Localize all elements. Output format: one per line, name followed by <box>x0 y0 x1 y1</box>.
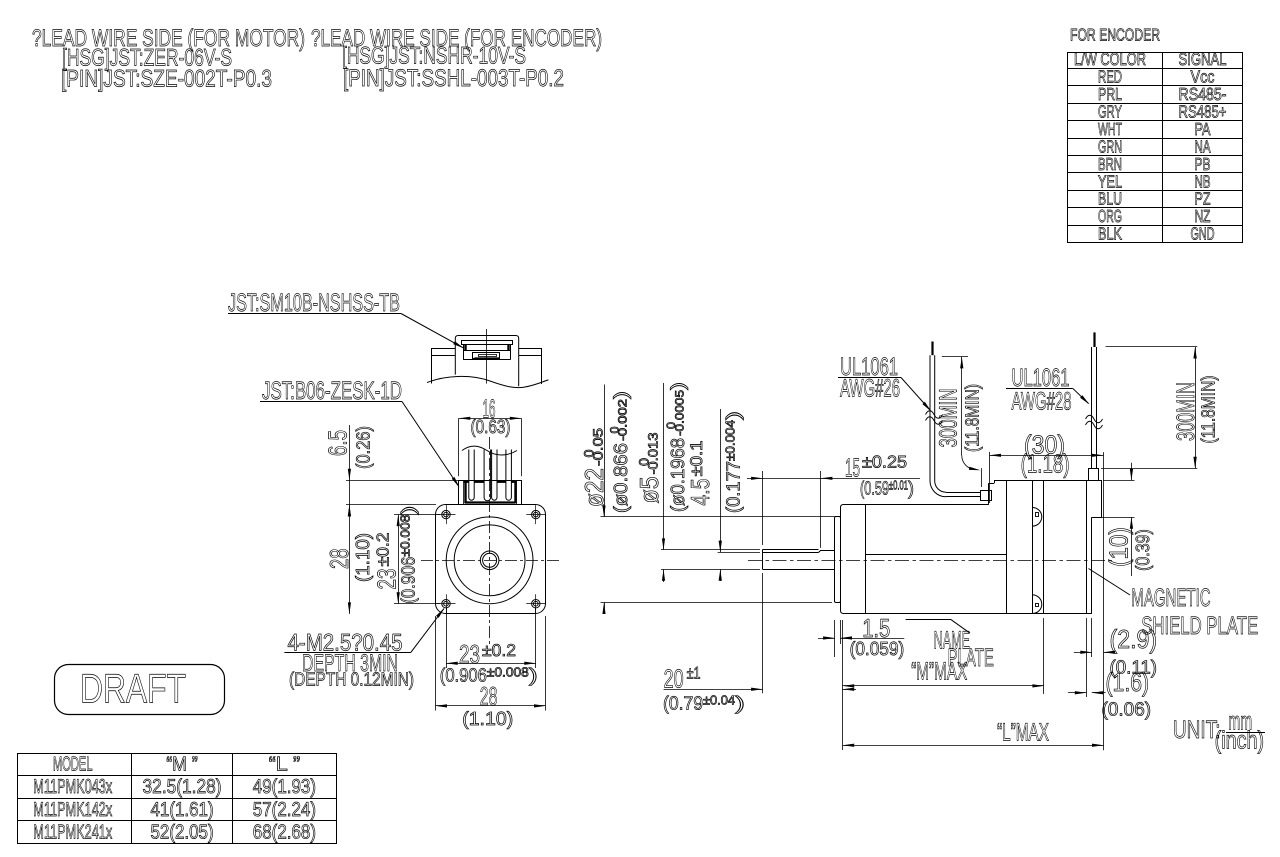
svg-text:32.5(1.28): 32.5(1.28) <box>143 776 222 798</box>
svg-text:JST:SM10B-NSHSS-TB: JST:SM10B-NSHSS-TB <box>228 289 400 317</box>
svg-text:[PIN]JST:SZE-002T-P0.3: [PIN]JST:SZE-002T-P0.3 <box>61 66 272 93</box>
svg-text:(0.59: (0.59 <box>860 479 889 500</box>
svg-text:PLATE: PLATE <box>948 644 994 672</box>
svg-text:JST:B06-ZESK-1D: JST:B06-ZESK-1D <box>262 377 402 405</box>
svg-text:): ) <box>611 391 632 399</box>
svg-text:±0.2: ±0.2 <box>482 641 516 660</box>
svg-text:±1: ±1 <box>687 663 701 682</box>
svg-text:M11PMK142x: M11PMK142x <box>33 799 112 821</box>
svg-text:): ) <box>399 506 420 515</box>
svg-text:[PIN]JST:SSHL-003T-P0.2: [PIN]JST:SSHL-003T-P0.2 <box>343 65 564 92</box>
svg-text:-0.002: -0.002 <box>616 399 630 441</box>
svg-text:±0.04: ±0.04 <box>703 693 735 708</box>
svg-text:6.5: 6.5 <box>323 430 353 456</box>
svg-text:-0.013: -0.013 <box>645 432 660 474</box>
svg-text:(1.6): (1.6) <box>1106 667 1150 697</box>
svg-text:M11PMK043x: M11PMK043x <box>33 776 112 798</box>
svg-text:49(1.93): 49(1.93) <box>253 776 316 798</box>
svg-text:23: 23 <box>459 639 480 669</box>
svg-text:300MIN: 300MIN <box>1172 382 1200 441</box>
svg-text:FOR ENCODER: FOR ENCODER <box>1070 26 1160 45</box>
svg-text:±0.008: ±0.008 <box>398 515 413 557</box>
svg-text:±0.25: ±0.25 <box>862 452 907 471</box>
svg-text:(1.10): (1.10) <box>462 709 513 730</box>
svg-text:(0.26): (0.26) <box>354 426 375 469</box>
svg-text:20: 20 <box>664 663 684 693</box>
svg-text:(11.8MIN): (11.8MIN) <box>1198 375 1219 443</box>
svg-text:0: 0 <box>664 422 678 429</box>
svg-text:): ) <box>735 694 745 715</box>
svg-text:(1.18): (1.18) <box>1021 449 1070 479</box>
svg-text:57(2.24): 57(2.24) <box>253 799 316 821</box>
svg-text:BLK: BLK <box>1098 224 1122 244</box>
svg-text:41(1.61): 41(1.61) <box>150 799 213 821</box>
svg-text:“L”MAX: “L”MAX <box>997 719 1049 747</box>
svg-text:): ) <box>723 411 744 420</box>
svg-text:(0.06): (0.06) <box>1102 700 1152 721</box>
svg-text:15: 15 <box>845 452 860 482</box>
svg-text:(DEPTH 0.12MIN): (DEPTH 0.12MIN) <box>289 670 414 691</box>
svg-text:0: 0 <box>582 449 597 457</box>
svg-text:±0.004: ±0.004 <box>722 420 737 461</box>
svg-text:±0.01: ±0.01 <box>889 478 908 493</box>
svg-text:±0.1: ±0.1 <box>687 440 706 476</box>
svg-text:DRAFT: DRAFT <box>80 666 186 712</box>
svg-text:(0.059): (0.059) <box>850 639 905 660</box>
svg-text:0: 0 <box>637 458 652 466</box>
svg-text:(ø0.866: (ø0.866 <box>611 443 632 513</box>
svg-text:4.5: 4.5 <box>685 478 715 505</box>
svg-text:(0.39): (0.39) <box>1133 529 1154 571</box>
svg-text:(0.79: (0.79 <box>663 694 703 715</box>
svg-text:MODEL: MODEL <box>53 754 92 776</box>
svg-text:±0.008: ±0.008 <box>487 665 529 680</box>
svg-text:300MIN: 300MIN <box>935 388 963 447</box>
svg-text:“L ”: “L ” <box>269 754 301 776</box>
svg-text:68(2.68): 68(2.68) <box>253 821 316 843</box>
svg-text:M11PMK241x: M11PMK241x <box>33 821 112 843</box>
svg-text:MAGNETIC: MAGNETIC <box>1131 584 1210 612</box>
svg-text:UNIT:: UNIT: <box>1173 716 1221 744</box>
svg-text:ø22: ø22 <box>579 468 609 507</box>
svg-text:(inch): (inch) <box>1215 727 1265 755</box>
svg-text:(11.8MIN): (11.8MIN) <box>963 384 984 452</box>
svg-text:): ) <box>529 666 538 687</box>
svg-text:0: 0 <box>607 426 621 433</box>
svg-text:(0.63): (0.63) <box>471 417 511 438</box>
svg-text:SHIELD PLATE: SHIELD PLATE <box>1141 612 1258 640</box>
svg-text:“M ”: “M ” <box>166 754 198 776</box>
svg-text:): ) <box>908 479 914 500</box>
svg-text:ø5: ø5 <box>634 476 664 503</box>
svg-text:(0.906: (0.906 <box>399 557 420 604</box>
svg-text:±0.2: ±0.2 <box>374 532 393 566</box>
svg-text:23: 23 <box>372 568 402 589</box>
svg-text:AWG#26: AWG#26 <box>840 375 900 403</box>
svg-text:AWG#28: AWG#28 <box>1012 388 1072 416</box>
svg-text:(0.177: (0.177 <box>723 461 744 513</box>
svg-text:52(2.05): 52(2.05) <box>150 821 213 843</box>
svg-text:28: 28 <box>324 549 354 569</box>
svg-text:(10): (10) <box>1103 527 1133 567</box>
svg-text:-0.05: -0.05 <box>590 428 605 466</box>
svg-text:): ) <box>668 382 689 390</box>
svg-text:GND: GND <box>1191 224 1215 244</box>
svg-text:28: 28 <box>480 681 498 711</box>
